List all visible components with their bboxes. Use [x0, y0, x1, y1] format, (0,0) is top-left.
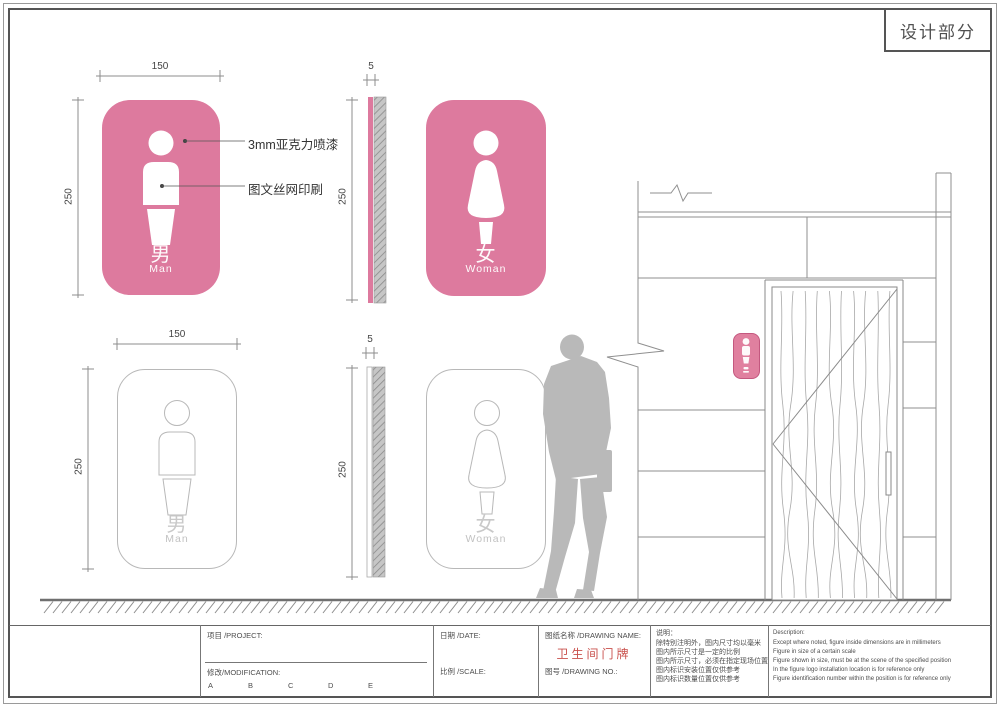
- dim-height-top-left: 250: [64, 177, 75, 217]
- drawing-sheet: 设计部分 男 Man 女 Woman: [0, 0, 1000, 707]
- titleblock-divider: [768, 625, 769, 697]
- mini-man-pictogram-icon: [734, 334, 758, 377]
- annotation-material: 3mm亚克力喷漆: [248, 134, 338, 153]
- titleblock-divider: [200, 625, 201, 697]
- notes-en-line: Figure in size of a certain scale: [773, 648, 856, 657]
- date-label: 日期 /DATE:: [440, 630, 481, 641]
- notes-zh-line: 除特别注明外，图内尺寸均以毫米: [656, 639, 761, 648]
- wall-top-break-icon: [650, 185, 712, 201]
- drawing-name-value: 卫生间门牌: [538, 645, 650, 662]
- notes-en-line: Figure identification number within the …: [773, 675, 951, 684]
- notes-zh-line: 图内所示尺寸是一定的比例: [656, 648, 740, 657]
- person-silhouette: [536, 335, 612, 599]
- notes-zh-line: 图内所示尺寸，必须在指定现场位置: [656, 657, 768, 666]
- scale-label: 比例 /SCALE:: [440, 666, 486, 677]
- sign-side-profile-top: [368, 97, 386, 303]
- revision-col-e: E: [368, 681, 373, 690]
- dim-width-bottom: 150: [157, 329, 197, 340]
- revision-col-d: D: [328, 681, 333, 690]
- dim-height-top-side: 250: [338, 177, 349, 217]
- titleblock-divider: [433, 625, 434, 697]
- dim-height-bottom-left: 250: [74, 447, 85, 487]
- section-title-box: 设计部分: [884, 10, 990, 52]
- notes-en-line: Figure shown in size, must be at the sce…: [773, 657, 951, 666]
- dim-thickness-top: 5: [351, 61, 391, 72]
- line-art-layer: [0, 0, 1000, 707]
- project-label: 项目 /PROJECT:: [207, 630, 262, 641]
- door-sign-installed: [733, 333, 760, 379]
- notes-en-line: Except where noted, figure inside dimens…: [773, 639, 941, 648]
- titleblock-top-line: [9, 625, 991, 626]
- notes-en-line: In the figure logo installation location…: [773, 666, 924, 675]
- dim-height-bottom-side: 250: [338, 450, 349, 490]
- revision-col-a: A: [208, 681, 213, 690]
- modification-label: 修改/MODIFICATION:: [207, 667, 280, 678]
- sign-side-profile-bottom: [367, 367, 385, 577]
- page-title: 设计部分: [900, 18, 976, 43]
- notes-zh-title: 说明：: [656, 629, 677, 638]
- notes-en-title: Description:: [773, 629, 805, 638]
- project-fill-line: [205, 662, 427, 663]
- ground-line: [40, 600, 951, 613]
- dim-thickness-bottom: 5: [350, 334, 390, 345]
- annotation-leaders: [160, 139, 245, 188]
- titleblock-divider: [650, 625, 651, 697]
- drawing-name-label: 图纸名称 /DRAWING NAME:: [545, 630, 641, 641]
- drawing-no-label: 图号 /DRAWING NO.:: [545, 666, 618, 677]
- notes-zh-line: 图内标识安装位置仅供参考: [656, 666, 740, 675]
- dim-width-top: 150: [140, 61, 180, 72]
- door-handle: [886, 452, 891, 495]
- door-elevation: [765, 280, 903, 600]
- notes-zh-line: 图内标识数量位置仅供参考: [656, 675, 740, 684]
- annotation-printing: 图文丝网印刷: [248, 179, 323, 198]
- revision-col-b: B: [248, 681, 253, 690]
- revision-col-c: C: [288, 681, 293, 690]
